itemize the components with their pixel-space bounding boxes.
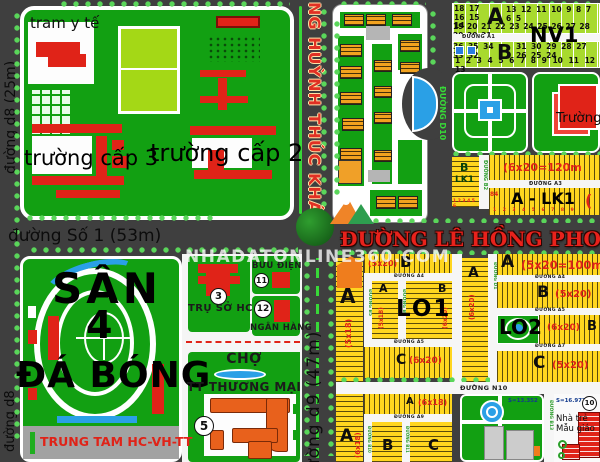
block-letter: B bbox=[587, 320, 597, 333]
lo1-label: LO1 bbox=[396, 298, 451, 321]
block-120m-size: (6x20=120m bbox=[503, 161, 582, 174]
apartment-building bbox=[366, 14, 386, 26]
nv1-block-a-letter: A bbox=[487, 7, 504, 29]
block-letter: B bbox=[438, 283, 446, 294]
block-b-lk1-numbers: 1 2 3 4 5 6 bbox=[453, 199, 478, 209]
school-right-label: Trường bbox=[556, 110, 600, 126]
block-b-lk1-letter: B bbox=[460, 161, 468, 174]
block-size: (5x20) bbox=[555, 289, 591, 300]
school-building-bar bbox=[32, 176, 124, 185]
park-structure-dot bbox=[487, 107, 493, 113]
trade-center-label: TT THƯƠNG MẠI bbox=[186, 381, 302, 393]
road-a3-label: ĐƯỜNG A3 bbox=[529, 182, 562, 187]
market-label: CHỢ bbox=[188, 352, 300, 366]
tree-row bbox=[333, 20, 341, 200]
road-median bbox=[299, 6, 302, 214]
high-school-label: trường cấp 3 bbox=[24, 148, 158, 169]
road-d10-label: ĐƯỜNG D10 bbox=[438, 86, 446, 140]
watermark-text: NHADATONLINE360.COM bbox=[185, 247, 450, 267]
block-size: (6x18) bbox=[418, 398, 447, 407]
road-a4-label: ĐƯỜNG A4 bbox=[394, 275, 424, 280]
school-building-bar bbox=[194, 170, 272, 179]
block-a-lk1: 84 A - LK1 ( 1 2 3 4 5 6 7 8 9 bbox=[489, 188, 600, 215]
road-a7-label: ĐƯỜNG A7 bbox=[535, 345, 565, 350]
hedge bbox=[293, 404, 300, 414]
park-building-orange bbox=[534, 446, 540, 456]
apartment-building bbox=[374, 60, 392, 72]
school-building-bar bbox=[56, 190, 120, 198]
block-a-lk1-paren: ( bbox=[585, 191, 592, 210]
road-a5-label: ĐƯỜNG A5 bbox=[394, 341, 424, 346]
road-a5-right: ĐƯỜNG A5 bbox=[497, 308, 600, 315]
hq-building bbox=[198, 276, 208, 284]
road-d1: ĐƯỜNG D1 bbox=[488, 254, 497, 394]
watermark-logo-sun bbox=[342, 197, 350, 205]
school-building-bar bbox=[218, 78, 227, 110]
tree-row bbox=[429, 10, 437, 70]
tree-row bbox=[60, 0, 290, 8]
block-letter: B bbox=[382, 438, 393, 453]
road-b2-label: ĐƯỜNG B2 bbox=[482, 160, 487, 190]
lo2-label: LO2 bbox=[499, 317, 542, 337]
road-a4-left: ĐƯỜNG A4 bbox=[364, 273, 452, 281]
apartment-building bbox=[340, 44, 362, 57]
admin-road-divider bbox=[186, 341, 300, 343]
post-number: 11 bbox=[256, 277, 267, 285]
center-strip-label: TRUNG TAM HC-VH-TT bbox=[40, 434, 192, 449]
road-b10: ĐƯỜNG B10 bbox=[364, 422, 372, 462]
apartment-building bbox=[340, 92, 362, 105]
road-b5-label: ĐƯỜNG B5 bbox=[367, 289, 372, 316]
center-strip-marker bbox=[30, 432, 35, 454]
block-size: (5x18) bbox=[378, 307, 385, 329]
road-a5-label: ĐƯỜNG A5 bbox=[535, 309, 565, 314]
block-size: (6x20) bbox=[547, 323, 580, 333]
block-a-6x18-col: A (6x18) bbox=[336, 394, 363, 462]
parking-lot bbox=[366, 26, 390, 40]
block-letter: B bbox=[537, 284, 549, 300]
block-letter: A bbox=[406, 397, 414, 407]
health-station-building bbox=[48, 54, 86, 67]
small-building bbox=[28, 306, 36, 318]
road-a9: ĐƯỜNG A9 bbox=[364, 414, 452, 422]
road-vertical bbox=[452, 254, 462, 394]
market-pond bbox=[214, 369, 266, 380]
hq-number: 3 bbox=[215, 292, 222, 302]
block-120m: (6x20=120m bbox=[489, 155, 600, 180]
sports-field bbox=[118, 26, 180, 114]
park-building bbox=[506, 430, 534, 460]
apartment-building bbox=[376, 196, 396, 209]
bank-building bbox=[274, 300, 290, 322]
road-huynh-thuc-khang-label: NG HUỲNH THÚC KHÁNG bbox=[305, 2, 324, 243]
bank-number-badge: 12 bbox=[254, 300, 272, 318]
road-a3: ĐƯỜNG A3 bbox=[489, 180, 600, 188]
block-b-6x20-lo2: (6x20) B bbox=[539, 315, 600, 344]
block-c-6x20: C (6x20) bbox=[364, 347, 452, 378]
apartment-building bbox=[392, 14, 412, 26]
tree-row bbox=[327, 260, 335, 456]
apartment-building bbox=[342, 118, 364, 131]
block-letter: A bbox=[340, 428, 353, 445]
block-size: (5x20) bbox=[552, 360, 588, 371]
utility-marker-icon bbox=[455, 46, 464, 55]
utility-marker-icon bbox=[467, 46, 476, 55]
school-building-bar bbox=[216, 16, 260, 28]
stadium-label-da-bong: ĐÁ BÓNG bbox=[16, 358, 211, 394]
block-size: (5x20=100m bbox=[521, 258, 600, 272]
hedge bbox=[293, 430, 300, 440]
block-letter: C bbox=[533, 355, 545, 372]
block-b-5x20-right: B (5x20) bbox=[497, 282, 600, 308]
block-a-6x20: A (6x20) bbox=[462, 258, 488, 382]
block-size: (5x18) bbox=[344, 319, 353, 348]
road-b11-label: ĐƯỜNG B11 bbox=[405, 426, 409, 453]
road-b11: ĐƯỜNG B11 bbox=[402, 422, 410, 462]
road-b13: ĐƯỜNG B13 bbox=[544, 394, 554, 462]
block-a-5x18-inner: A (5x18) bbox=[372, 281, 398, 339]
apartment-building bbox=[374, 150, 392, 162]
tree-row bbox=[336, 217, 596, 223]
road-a5-left: ĐƯỜNG A5 bbox=[364, 339, 452, 347]
residential-lawn bbox=[398, 140, 422, 184]
road-a7: ĐƯỜNG A7 bbox=[497, 344, 600, 351]
park-building bbox=[484, 426, 504, 460]
health-station-label: tram y tế bbox=[30, 14, 99, 32]
nv1-block-b-letter: B bbox=[497, 42, 512, 62]
nv1-label: NV1 bbox=[530, 25, 578, 46]
block-letter: C bbox=[396, 353, 406, 367]
road-b2: ĐƯỜNG B2 bbox=[479, 155, 489, 209]
stadium-pool bbox=[57, 416, 137, 423]
apartment-building bbox=[374, 86, 392, 98]
bank-label: NGÂN HÀNG bbox=[250, 324, 302, 333]
apartment-building bbox=[340, 66, 362, 79]
block-b-lk1: B LK1 1 2 3 4 5 6 bbox=[452, 157, 479, 207]
urban-planning-map: tram y tế trường cấp 3 trường cấp 2 đườn… bbox=[0, 0, 600, 462]
block-b-lk1-name: LK1 bbox=[455, 175, 474, 185]
apartment-building bbox=[398, 196, 418, 209]
apartment-building bbox=[400, 40, 420, 52]
watermark-logo-leaf bbox=[296, 208, 334, 246]
school-grove bbox=[208, 36, 260, 62]
nv1-a-numbers: 13 12 11 10 9 8 7 6 5 bbox=[506, 6, 598, 23]
middle-school-label: trường cấp 2 bbox=[150, 141, 303, 165]
school-building-bar bbox=[200, 70, 246, 77]
school-building-bar bbox=[32, 124, 122, 133]
block-letter: A bbox=[379, 283, 388, 294]
road-b5: ĐƯỜNG B5 bbox=[364, 281, 372, 339]
community-building bbox=[338, 160, 362, 184]
block-size: (6x20) bbox=[409, 356, 442, 366]
kindergarten-label-line2: Mẫu giáo bbox=[556, 424, 595, 434]
market-number: 5 bbox=[200, 420, 208, 432]
block-a-100: A (5x20=100m bbox=[497, 254, 600, 275]
block-a-lk1-numbers: 1 2 3 4 5 6 7 8 9 bbox=[493, 208, 574, 213]
tree-row bbox=[26, 214, 216, 222]
block-size: (6x18) bbox=[354, 432, 362, 458]
block-a-lk1-84: 84 bbox=[490, 191, 498, 198]
road-a1-label: ĐƯỜNG A1 bbox=[462, 35, 495, 40]
kindergarten-tree-icon bbox=[558, 440, 567, 449]
road-a9-label: ĐƯỜNG A9 bbox=[394, 416, 424, 421]
block-c-5x20: C (5x20) bbox=[497, 351, 600, 382]
block-letter: A bbox=[501, 254, 514, 271]
block-a-lk1-label: A - LK1 bbox=[511, 191, 575, 207]
road-b13-label: ĐƯỜNG B13 bbox=[548, 400, 553, 430]
road-n10: ĐƯỜNG N10 bbox=[336, 382, 600, 394]
block-b-bottom: B bbox=[372, 422, 402, 462]
road-so1-label: đường Số 1 (53m) bbox=[8, 226, 161, 246]
trade-center-building bbox=[248, 441, 272, 459]
road-a4-label: ĐƯỜNG A4 bbox=[535, 276, 565, 281]
trade-center-building bbox=[210, 430, 224, 450]
market-number-badge: 5 bbox=[194, 416, 214, 436]
school-building-bar bbox=[190, 126, 276, 135]
grandstand bbox=[48, 316, 59, 360]
tree-row bbox=[340, 0, 426, 5]
road-n10-label: ĐƯỜNG N10 bbox=[460, 385, 508, 392]
apartment-building bbox=[374, 112, 392, 124]
kindergarten-tree-icon bbox=[558, 452, 565, 459]
block-c-bottom: C bbox=[410, 422, 452, 462]
road-d9-label: đường d9 (47m) bbox=[304, 331, 324, 462]
tree-row bbox=[340, 376, 490, 382]
small-building bbox=[28, 330, 37, 344]
road-d1-label: ĐƯỜNG D1 bbox=[492, 262, 497, 289]
parking-lot bbox=[368, 170, 390, 182]
kindergarten-label-line1: Nhà trẻ bbox=[556, 414, 588, 424]
stadium-label-4: 4 bbox=[86, 306, 112, 344]
block-letter: A bbox=[340, 286, 355, 306]
park-path bbox=[462, 420, 542, 424]
sports-field-midline bbox=[121, 68, 177, 70]
hq-building bbox=[230, 276, 240, 284]
block-size: (6x20) bbox=[468, 294, 476, 320]
road-b10-label: ĐƯỜNG B10 bbox=[367, 426, 371, 453]
apartment-building bbox=[344, 14, 364, 26]
kindergarten-number: 10 bbox=[585, 400, 595, 407]
watermark-logo-mountain bbox=[348, 204, 374, 224]
road-a4-right: ĐƯỜNG A4 bbox=[497, 275, 600, 282]
park-area-label: S=13.352 bbox=[508, 398, 538, 404]
hq-label: TRỤ SỞ HC bbox=[188, 304, 250, 314]
block-letter: C bbox=[428, 438, 439, 453]
fountain-center bbox=[488, 408, 496, 416]
block-a-6x18-strip: A (6x18) bbox=[364, 394, 452, 414]
post-building bbox=[272, 272, 290, 288]
school-building-bar bbox=[200, 96, 248, 103]
kindergarten-number-badge: 10 bbox=[582, 396, 597, 411]
bank-number: 12 bbox=[257, 305, 270, 314]
post-number-badge: 11 bbox=[254, 273, 269, 288]
block-letter: A bbox=[468, 266, 479, 280]
